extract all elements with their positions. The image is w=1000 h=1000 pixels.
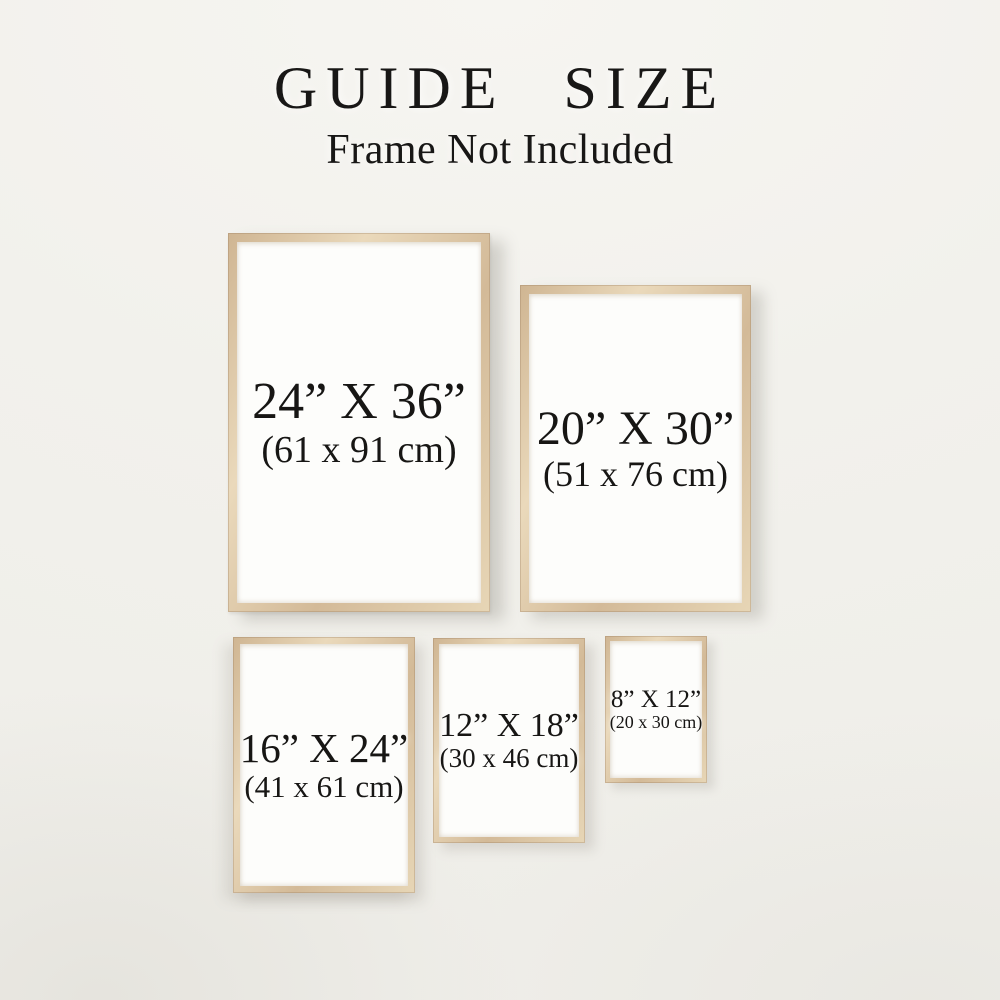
size-label-cm-8x12: (20 x 30 cm) (610, 713, 702, 732)
size-guide-poster: GUIDE SIZE Frame Not Included 24” X 36” … (0, 0, 1000, 1000)
frame-24x36-paper: 24” X 36” (61 x 91 cm) (237, 242, 481, 603)
size-label-cm-16x24: (41 x 61 cm) (244, 770, 403, 803)
frame-8x12: 8” X 12” (20 x 30 cm) (605, 636, 707, 783)
size-label-cm-12x18: (30 x 46 cm) (440, 744, 579, 773)
frame-16x24-paper: 16” X 24” (41 x 61 cm) (240, 644, 408, 886)
frame-20x30: 20” X 30” (51 x 76 cm) (520, 285, 751, 612)
frame-24x36: 24” X 36” (61 x 91 cm) (228, 233, 490, 612)
frame-12x18-paper: 12” X 18” (30 x 46 cm) (439, 644, 579, 837)
size-label-inches-8x12: 8” X 12” (611, 686, 701, 713)
size-label-cm-20x30: (51 x 76 cm) (543, 455, 728, 494)
frame-12x18: 12” X 18” (30 x 46 cm) (433, 638, 585, 843)
page-subtitle: Frame Not Included (0, 126, 1000, 174)
frame-16x24: 16” X 24” (41 x 61 cm) (233, 637, 415, 893)
size-label-inches-20x30: 20” X 30” (537, 403, 734, 455)
page-title: GUIDE SIZE (0, 54, 1000, 123)
frame-20x30-paper: 20” X 30” (51 x 76 cm) (529, 294, 742, 603)
size-label-inches-24x36: 24” X 36” (252, 374, 466, 430)
size-label-cm-24x36: (61 x 91 cm) (261, 430, 456, 471)
size-label-inches-12x18: 12” X 18” (439, 708, 579, 745)
size-label-inches-16x24: 16” X 24” (240, 726, 409, 770)
frame-8x12-paper: 8” X 12” (20 x 30 cm) (610, 641, 702, 778)
